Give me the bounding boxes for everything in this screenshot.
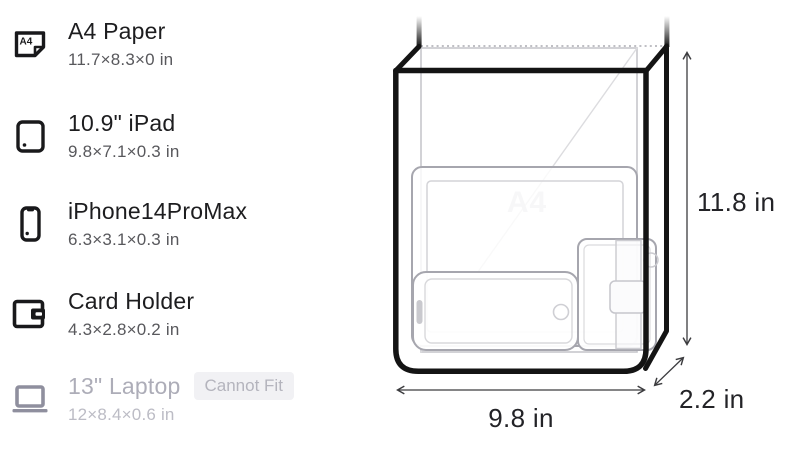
svg-text:A4: A4: [20, 36, 33, 47]
item-label: 13" Laptop: [68, 373, 181, 400]
iphone-icon: [10, 205, 50, 243]
list-item-card-holder[interactable]: Card Holder 4.3×2.8×0.2 in: [10, 288, 350, 340]
item-label: Card Holder: [68, 288, 194, 315]
item-label: A4 Paper: [68, 18, 166, 45]
a4-paper-icon: A4: [10, 29, 50, 60]
cannot-fit-badge: Cannot Fit: [194, 372, 294, 400]
bag-diagram: A4: [380, 0, 800, 455]
item-dimensions: 4.3×2.8×0.2 in: [68, 320, 194, 340]
item-label: iPhone14ProMax: [68, 198, 247, 225]
item-dimensions: 9.8×7.1×0.3 in: [68, 142, 180, 162]
item-dimensions: 12×8.4×0.6 in: [68, 405, 294, 425]
list-item-laptop[interactable]: 13" Laptop Cannot Fit 12×8.4×0.6 in: [10, 372, 350, 425]
item-dimensions: 6.3×3.1×0.3 in: [68, 230, 247, 250]
iphone-outline: [413, 272, 578, 350]
card-holder-icon: [10, 298, 50, 330]
list-item-a4-paper[interactable]: A4 A4 Paper 11.7×8.3×0 in: [10, 18, 350, 70]
depth-arrow: [655, 358, 683, 385]
list-item-iphone[interactable]: iPhone14ProMax 6.3×3.1×0.3 in: [10, 198, 350, 250]
item-label: 10.9" iPad: [68, 110, 175, 137]
depth-label: 2.2 in: [679, 384, 744, 414]
height-label: 11.8 in: [697, 187, 775, 217]
width-label: 9.8 in: [488, 403, 553, 433]
list-item-ipad[interactable]: 10.9" iPad 9.8×7.1×0.3 in: [10, 110, 350, 162]
ipad-icon: [10, 119, 50, 154]
bag-fit-visualizer: A4 A4 Paper 11.7×8.3×0 in 10.9" iPad 9.8…: [0, 0, 800, 455]
item-dimensions: 11.7×8.3×0 in: [68, 50, 173, 70]
laptop-icon: [10, 383, 50, 414]
